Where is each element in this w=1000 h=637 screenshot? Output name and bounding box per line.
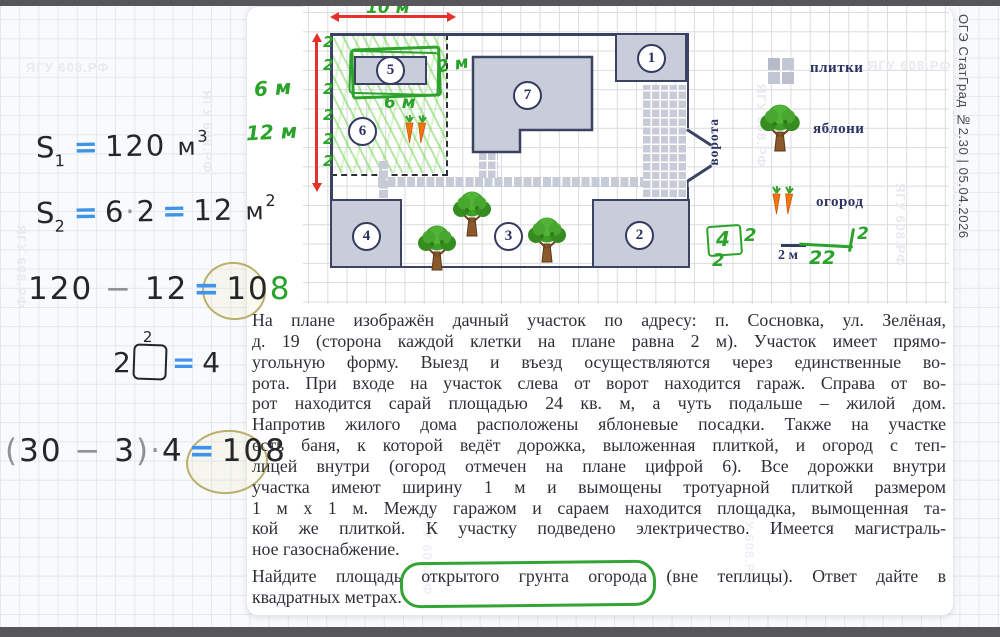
green-box-value: 4 [716, 227, 730, 251]
text-line: лицей внутри (огород отмечен на плане ци… [252, 456, 946, 477]
green-note: 2 [744, 225, 757, 246]
watermark: ЯГУ 608.РФ [26, 60, 109, 75]
sidebar-caption: ОГЭ СтатГрад №2.30 | 05.04.2026 [956, 14, 971, 239]
tiles-legend-icon [768, 58, 794, 84]
cell-mark: 2 [323, 56, 333, 74]
tile-path-stub [379, 160, 388, 198]
arrow-head-right-icon [447, 12, 456, 22]
carrot-legend-icon [767, 183, 797, 217]
problem-text: На плане изображён дачный участок по адр… [252, 310, 946, 560]
cell-mark: 2 [323, 130, 333, 148]
text-line: рота. При входе на участок слева от воро… [252, 373, 946, 394]
legend-apples-label: яблони [813, 121, 864, 138]
equation-4: 22=4 [113, 344, 222, 380]
tile-paved-area [643, 85, 687, 197]
legend-garden-label: огород [816, 194, 863, 211]
note-dim-12m: 12 м [245, 119, 297, 146]
watermark: ЯГУ 608.РФ [14, 225, 29, 308]
apple-tree-icon [525, 216, 569, 264]
text-line: кой же плиткой. К участку подведено элек… [252, 518, 946, 539]
carrot-icon [400, 112, 430, 146]
plan-label-4: 4 [352, 222, 381, 251]
arrow-height [315, 40, 318, 184]
tile-path-house [479, 152, 498, 178]
cell-mark: 2 [323, 106, 333, 124]
text-line: ное газоснабжение. [252, 539, 946, 560]
apple-tree-icon [450, 190, 494, 238]
text-line: есть баня, к которой ведёт дорожка, выло… [252, 435, 946, 456]
tile-doodle [132, 343, 167, 380]
plan-label-6: 6 [348, 117, 377, 146]
text-line: 1 м х 1 м. Между гаражом и сараем находи… [252, 498, 946, 519]
apple-tree-legend-icon [757, 103, 803, 153]
arrow-head-left-icon [330, 12, 339, 22]
watermark: ЯГУ 608.РФ [868, 58, 951, 73]
equation-2: S2=6·2=12 м2 [36, 195, 278, 228]
cell-mark: 2 [323, 152, 333, 170]
text-line: угольную форму. Выезд и въезд осуществля… [252, 352, 946, 373]
arrow-head-up-icon [312, 33, 322, 42]
text-line: На плане изображён дачный участок по адр… [252, 310, 946, 331]
equation-5: (30 − 3)·4=108 [5, 436, 287, 467]
green-note: 2 [712, 250, 725, 271]
note-dim-6m: 6 м [253, 75, 292, 102]
page: ЯГУ 608.РФ ЯГУ 608.РФ ЯГУ 608.РФ ЯГУ 608… [0, 0, 1000, 637]
text-line: д. 19 (сторона каждой клетки на плане ра… [252, 331, 946, 352]
green-note: 22 [809, 247, 835, 269]
text-line: Напротив жилого дома расположены яблонев… [252, 414, 946, 435]
plan-label-7: 7 [513, 81, 542, 110]
plan-label-3: 3 [494, 222, 523, 251]
gate-label: ворота [706, 118, 722, 166]
scale-label: 2 м [778, 248, 798, 264]
cell-mark: 2 [323, 80, 333, 98]
watermark: ЯГУ 608.РФ [893, 183, 908, 266]
top-edge-bar [0, 0, 1000, 6]
cell-mark: 2 [323, 33, 333, 51]
bottom-edge-bar [0, 627, 1000, 637]
green-note: 2 [857, 224, 869, 244]
equation-1: S1=120 м3 [36, 130, 210, 162]
legend-tiles-label: плитки [810, 60, 863, 77]
text-line: рот находится сарай площадью 24 кв. м, а… [252, 393, 946, 414]
equation-3: 120 − 12=108 [28, 274, 292, 305]
plan-label-1: 1 [637, 44, 666, 73]
arrow-head-down-icon [312, 183, 322, 192]
note-banya-depth: 6 м [384, 93, 416, 113]
green-outline-banya-2 [348, 50, 439, 96]
green-highlight-loop [400, 560, 656, 609]
text-line: участка имеют ширину 1 м и вымощены трот… [252, 477, 946, 498]
plan-label-2: 2 [625, 221, 654, 250]
